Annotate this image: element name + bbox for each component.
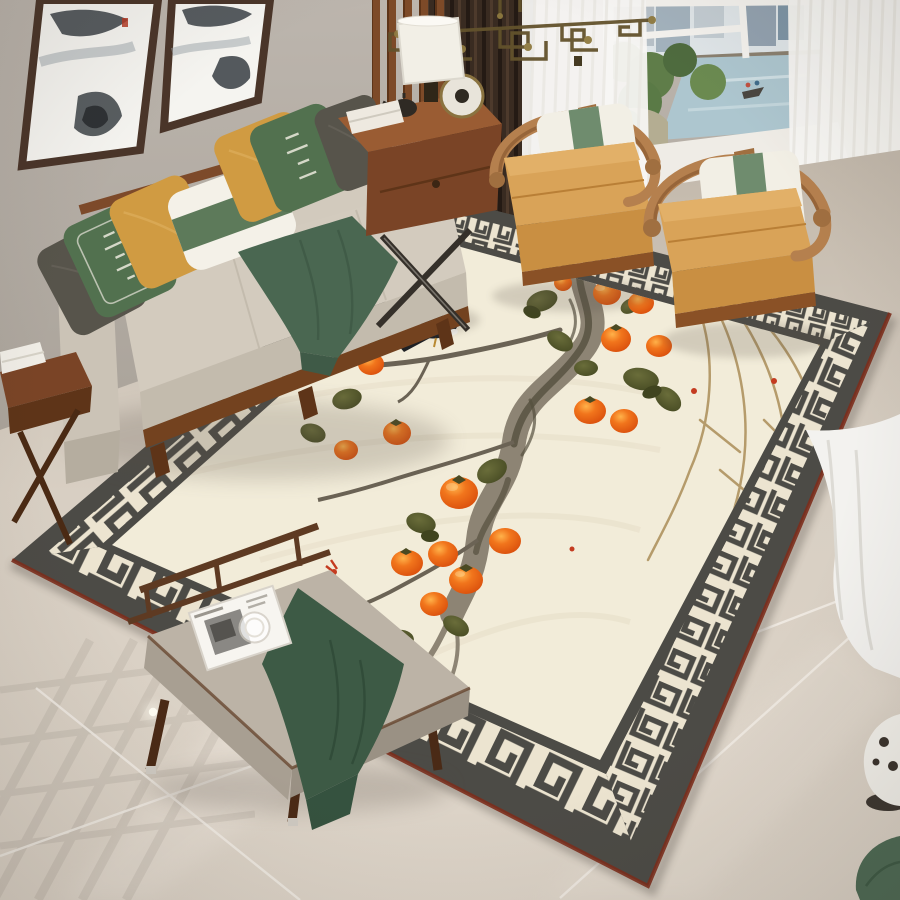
vignette: [0, 0, 900, 900]
scene-canvas: [0, 0, 900, 900]
living-room-photo: [0, 0, 900, 900]
